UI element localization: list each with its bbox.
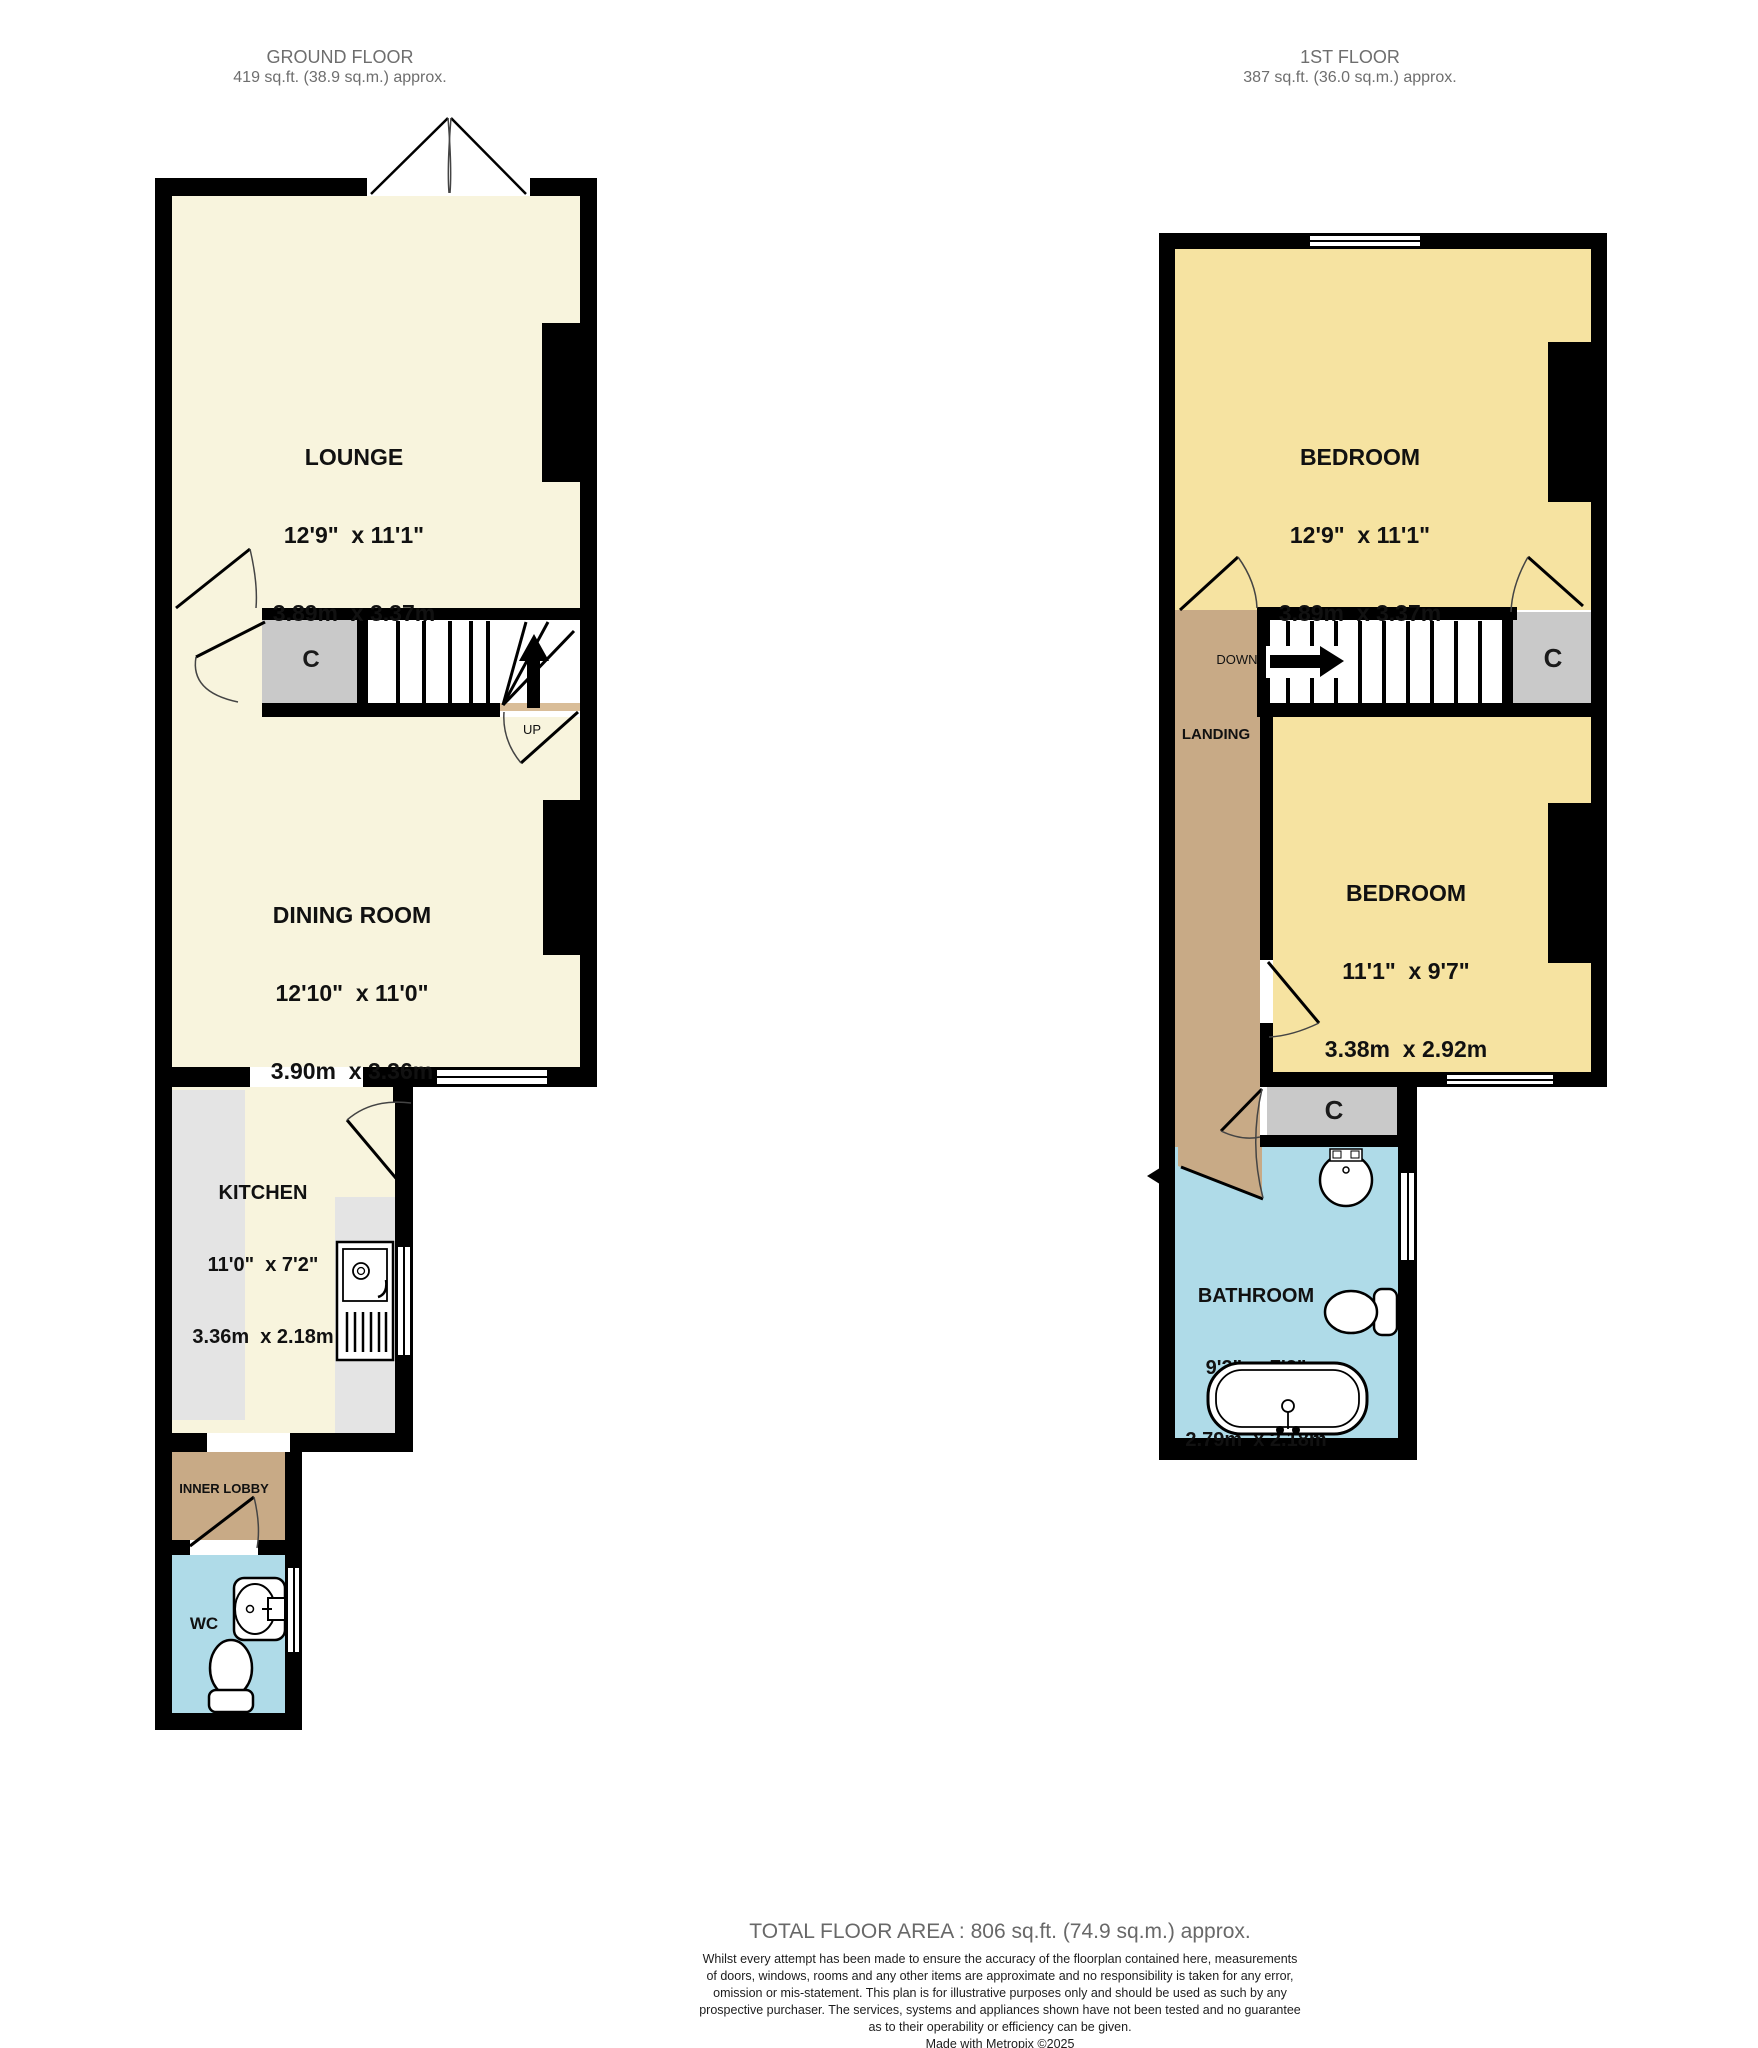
wc-label: WC [190,1612,218,1636]
dining-label: DINING ROOM 12'10" x 11'0" 3.90m x 3.36m [271,850,433,1136]
bedroom1-imperial: 12'9" x 11'1" [1279,522,1441,548]
wall [1260,717,1273,960]
inner-lobby-label: INNER LOBBY [179,1481,269,1496]
lounge-name: LOUNGE [273,444,435,470]
bedroom2-metric: 3.38m x 2.92m [1325,1036,1487,1062]
wall [1257,610,1270,717]
kitchen-label: KITCHEN 11'0" x 7'2" 3.36m x 2.18m [192,1133,333,1397]
lounge-metric: 3.89m x 3.37m [273,600,435,626]
wall [155,178,172,1730]
disclaimer-line: as to their operability or efficiency ca… [400,2019,1600,2036]
chimney-breast-lounge [542,323,580,482]
window-wc [285,1568,302,1652]
dining-metric: 3.90m x 3.36m [271,1058,433,1084]
chimney-breast-bedroom1 [1548,342,1591,502]
floorplan-canvas: GROUND FLOOR 419 sq.ft. (38.9 sq.m.) app… [0,0,1758,2048]
bedroom2-imperial: 11'1" x 9'7" [1325,958,1487,984]
window-bedroom1 [1310,233,1420,249]
wall [1420,233,1607,249]
landing-label: LANDING [1182,726,1250,743]
first-floor-title: 1ST FLOOR [1150,46,1550,68]
wall [1591,233,1607,1087]
wall [1260,1135,1417,1147]
wall [1398,1260,1417,1460]
wall [547,1067,597,1087]
french-doors-lounge [371,118,526,194]
wall [1502,612,1513,703]
bathroom-name: BATHROOM [1185,1284,1326,1308]
dining-name: DINING ROOM [271,902,433,928]
first-floor-header: 1ST FLOOR 387 sq.ft. (36.0 sq.m.) approx… [1150,46,1550,88]
ground-floor-header: GROUND FLOOR 419 sq.ft. (38.9 sq.m.) app… [140,46,540,88]
bathroom-imperial: 9'2" x 7'2" [1185,1356,1326,1380]
window-pane [1407,1173,1409,1260]
wall [155,1067,250,1087]
kitchen-imperial: 11'0" x 7'2" [192,1253,333,1277]
kitchen-metric: 3.36m x 2.18m [192,1325,333,1349]
kitchen-counter-right [335,1197,395,1433]
disclaimer-line: omission or mis-statement. This plan is … [400,1985,1600,2002]
disclaimer-line: prospective purchaser. The services, sys… [400,2002,1600,2019]
wall [1159,233,1175,1460]
bedroom1-label: BEDROOM 12'9" x 11'1" 3.89m x 3.37m [1279,392,1441,678]
lounge-imperial: 12'9" x 11'1" [273,522,435,548]
cupboard-landing-label: C [1325,1096,1344,1124]
wall [1159,233,1310,249]
room-inner-lobby [172,1452,285,1540]
first-floor-area: 387 sq.ft. (36.0 sq.m.) approx. [1150,68,1550,88]
cupboard-ground-label: C [302,646,319,674]
wall [262,703,500,717]
bedroom1-name: BEDROOM [1279,444,1441,470]
window-pane [437,1076,547,1078]
bedroom1-metric: 3.89m x 3.37m [1279,600,1441,626]
ground-floor-title: GROUND FLOOR [140,46,540,68]
stairs-up-label: UP [523,722,541,737]
window-dining [437,1067,547,1087]
kitchen-name: KITCHEN [192,1181,333,1205]
wall [1257,703,1591,717]
chimney-breast-bedroom2 [1548,803,1591,963]
ground-floor-area: 419 sq.ft. (38.9 sq.m.) approx. [140,68,540,88]
wall [155,1433,207,1452]
bathroom-metric: 2.79m x 2.18m [1185,1428,1326,1452]
disclaimer-line: Whilst every attempt has been made to en… [400,1951,1600,1968]
wall [290,1433,413,1452]
wall [1260,1023,1273,1072]
wall [1553,1072,1607,1087]
window-pane [1310,240,1420,242]
bedroom2-label: BEDROOM 11'1" x 9'7" 3.38m x 2.92m [1325,828,1487,1114]
wall [155,1713,302,1730]
wall [258,1540,302,1555]
bedroom2-name: BEDROOM [1325,880,1487,906]
cupboard-over-stairs-label: C [1544,644,1563,672]
window-pane [403,1247,405,1355]
dining-imperial: 12'10" x 11'0" [271,980,433,1006]
lounge-label: LOUNGE 12'9" x 11'1" 3.89m x 3.37m [273,392,435,678]
disclaimer-line: of doors, windows, rooms and any other i… [400,1968,1600,1985]
window-pane [293,1568,295,1652]
window-bathroom [1398,1173,1417,1260]
stairs-down-label: DOWN [1216,652,1257,667]
window-kitchen [395,1247,413,1355]
bathroom-label: BATHROOM 9'2" x 7'2" 2.79m x 2.18m [1185,1236,1326,1500]
passage-lounge-dining [172,610,262,717]
chimney-breast-dining [543,800,580,955]
stair-threshold [500,703,580,711]
wall [155,1540,190,1555]
room-landing [1175,610,1260,1147]
wall [580,178,597,1087]
total-floor-area: TOTAL FLOOR AREA : 806 sq.ft. (74.9 sq.m… [400,1920,1600,1944]
wall [155,178,367,196]
wall [1398,1147,1417,1173]
metropix-credit: Made with Metropix ©2025 [400,2036,1600,2048]
